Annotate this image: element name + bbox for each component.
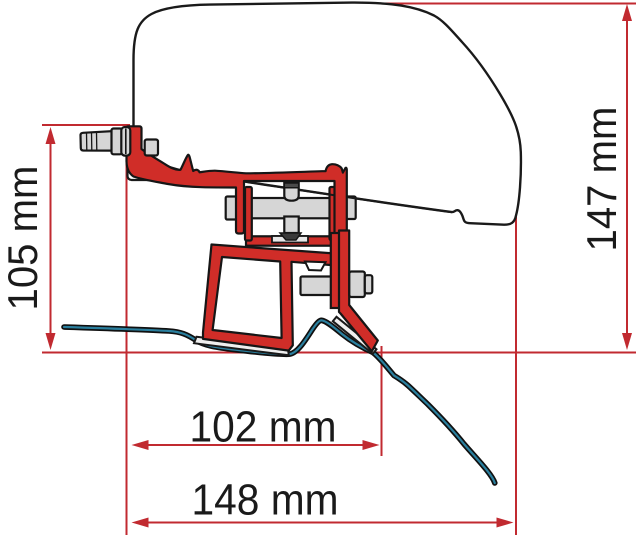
svg-text:148 mm: 148 mm [192, 476, 339, 525]
svg-text:147 mm: 147 mm [578, 107, 625, 252]
svg-text:102 mm: 102 mm [190, 403, 337, 452]
svg-text:105 mm: 105 mm [0, 166, 46, 311]
